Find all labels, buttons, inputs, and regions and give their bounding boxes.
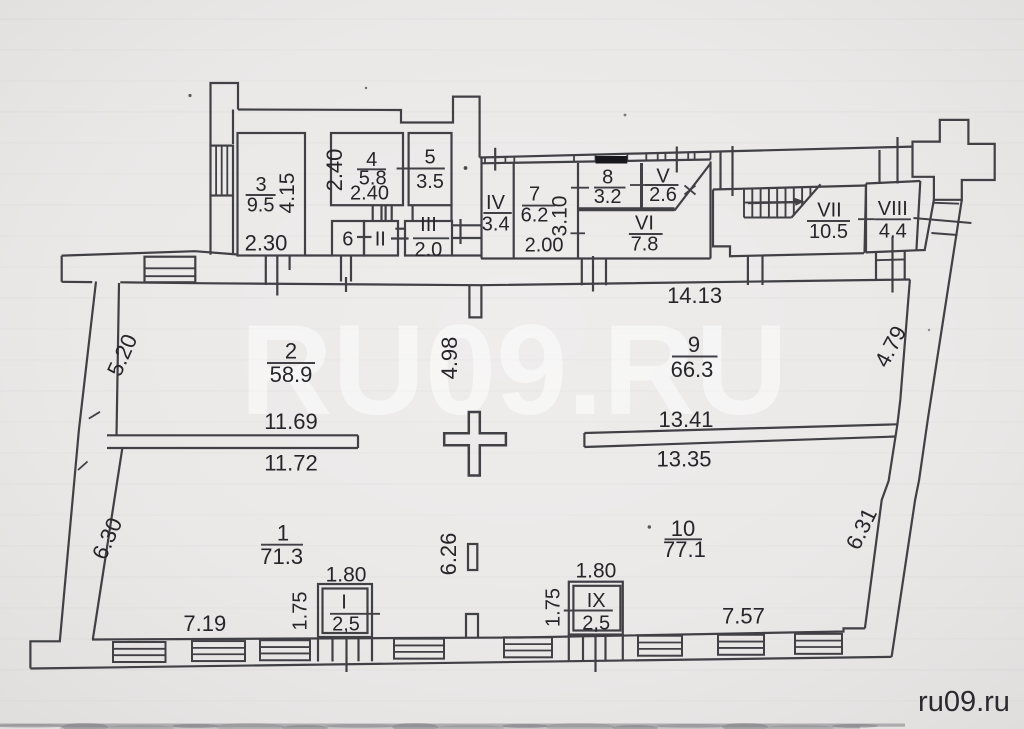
svg-text:71.3: 71.3: [260, 544, 303, 569]
svg-text:3: 3: [255, 174, 266, 196]
svg-text:14.13: 14.13: [667, 283, 722, 308]
svg-text:3.2: 3.2: [594, 186, 622, 208]
svg-text:11.72: 11.72: [264, 451, 317, 476]
svg-text:1.75: 1.75: [542, 588, 564, 627]
svg-text:2,5: 2,5: [332, 614, 360, 636]
svg-text:66.3: 66.3: [671, 357, 714, 382]
svg-text:7.8: 7.8: [631, 234, 659, 256]
svg-text:4.4: 4.4: [879, 221, 907, 243]
svg-text:2.30: 2.30: [245, 231, 288, 256]
svg-text:2.00: 2.00: [525, 235, 564, 257]
svg-text:5: 5: [424, 147, 435, 169]
svg-text:7.19: 7.19: [183, 611, 226, 636]
svg-text:6.26: 6.26: [436, 533, 461, 576]
svg-text:4.15: 4.15: [276, 173, 299, 214]
svg-text:I: I: [341, 592, 347, 614]
svg-text:2: 2: [285, 339, 297, 364]
svg-text:3.5: 3.5: [416, 171, 444, 193]
svg-text:10.5: 10.5: [809, 221, 848, 243]
svg-text:2.40: 2.40: [322, 149, 347, 192]
svg-text:11.69: 11.69: [264, 409, 317, 434]
svg-text:77.1: 77.1: [663, 537, 706, 562]
svg-text:IX: IX: [587, 590, 606, 612]
svg-text:9: 9: [688, 332, 700, 357]
svg-text:1.80: 1.80: [575, 560, 616, 583]
svg-text:6: 6: [342, 229, 353, 251]
svg-text:III: III: [420, 214, 437, 236]
svg-text:2.0: 2.0: [414, 239, 442, 261]
svg-text:1.75: 1.75: [289, 592, 311, 631]
svg-text:VIII: VIII: [878, 198, 908, 220]
svg-text:7: 7: [529, 184, 540, 206]
svg-text:2,5: 2,5: [582, 613, 610, 635]
svg-text:13.41: 13.41: [658, 407, 713, 432]
svg-text:3.4: 3.4: [482, 214, 510, 236]
svg-text:6.2: 6.2: [521, 205, 549, 227]
svg-text:ru09.ru: ru09.ru: [918, 686, 1010, 718]
svg-text:1: 1: [277, 521, 289, 546]
svg-text:3.10: 3.10: [549, 196, 572, 237]
svg-text:13.35: 13.35: [656, 447, 711, 472]
svg-text:4.98: 4.98: [437, 337, 462, 380]
svg-text:1.80: 1.80: [326, 564, 367, 587]
svg-text:58.9: 58.9: [270, 362, 313, 387]
svg-text:2.6: 2.6: [649, 184, 677, 206]
svg-text:IV: IV: [486, 192, 506, 214]
svg-text:7.57: 7.57: [722, 604, 765, 629]
svg-text:VII: VII: [817, 200, 841, 222]
svg-text:9.5: 9.5: [247, 195, 275, 217]
svg-text:2.40: 2.40: [350, 183, 389, 205]
svg-text:II: II: [375, 229, 386, 251]
svg-text:VI: VI: [635, 213, 654, 235]
